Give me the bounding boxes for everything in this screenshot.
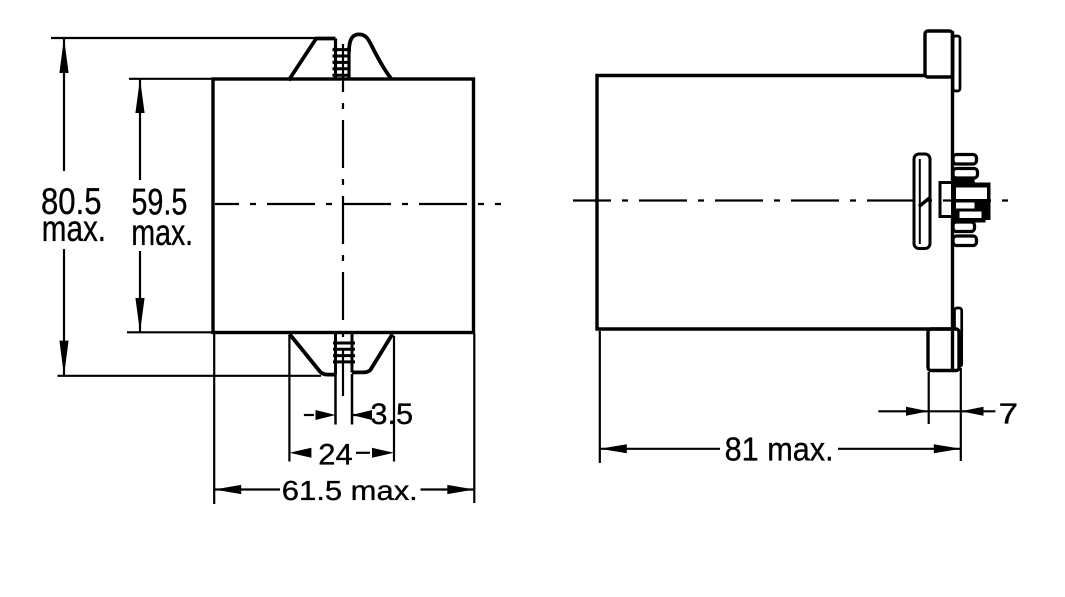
svg-text:7: 7: [999, 398, 1019, 430]
svg-text:3.5: 3.5: [370, 398, 413, 431]
svg-text:max.: max.: [131, 212, 193, 253]
svg-text:81 max.: 81 max.: [725, 431, 834, 468]
svg-text:61.5 max.: 61.5 max.: [282, 475, 418, 506]
svg-text:24: 24: [318, 439, 353, 472]
svg-text:max.: max.: [42, 208, 106, 249]
